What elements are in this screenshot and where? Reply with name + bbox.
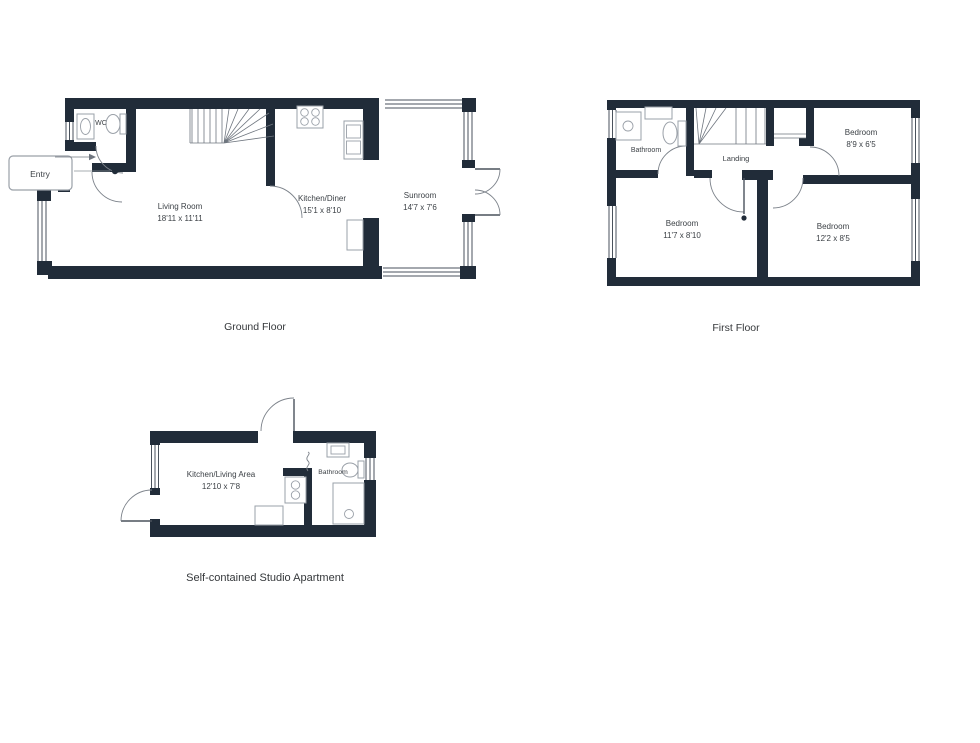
hob-icon [297,106,323,128]
wc-label: WC [95,120,107,127]
toilet-icon [663,122,677,144]
bathtub-icon [645,107,672,119]
studio-bathroom-label: Bathroom [318,469,348,476]
bedroom-label: Bedroom [845,128,878,137]
first-floor-bathroom-fixtures [616,107,686,146]
kitchen-fixtures [297,106,363,250]
staircase-first [694,108,766,144]
studio-doors [121,398,309,521]
kitchen-living-label: Kitchen/Living Area [187,470,256,479]
entry-annotation [9,154,96,190]
bedroom-label: Bedroom [817,222,850,231]
kitchen-living-dimensions: 12'10 x 7'8 [202,482,241,491]
kitchen-diner-label: Kitchen/Diner [298,194,346,203]
living-room-dimensions: 18'11 x 11'11 [157,214,203,223]
bedroom-dimensions: 11'7 x 8'10 [663,231,701,240]
first-floor-caption: First Floor [712,322,760,334]
ground-floor-plan: WC Entry Living Room 18'11 x 11'11 Kitch… [9,98,500,333]
living-room-label: Living Room [158,202,203,211]
shower-icon [333,483,364,524]
basin-icon [616,112,641,140]
counter-icon [255,506,283,525]
basin-icon [77,114,94,139]
studio-caption: Self-contained Studio Apartment [186,572,344,584]
bedroom-label: Bedroom [666,219,699,228]
toilet-cistern-icon [358,461,364,478]
toilet-cistern-icon [678,121,686,146]
floorplan-page: WC Entry Living Room 18'11 x 11'11 Kitch… [0,0,980,743]
entry-arrow-head-icon [89,154,96,160]
floorplan-canvas: WC Entry Living Room 18'11 x 11'11 Kitch… [0,0,980,743]
kitchen-diner-dimensions: 15'1 x 8'10 [303,206,342,215]
basin-icon [327,443,349,457]
entry-label: Entry [30,169,51,179]
staircase-ground [190,109,274,143]
first-floor-labels: Bathroom Landing Bedroom 8'9 x 6'5 Bedro… [631,128,878,334]
ground-floor-caption: Ground Floor [224,321,286,333]
sunroom-label: Sunroom [404,191,437,200]
counter-icon [347,220,363,250]
studio-plan: Kitchen/Living Area 12'10 x 7'8 Bathroom… [121,398,376,584]
landing-label: Landing [723,154,750,163]
sunroom-dimensions: 14'7 x 7'6 [403,203,437,212]
toilet-icon [106,115,120,134]
bedroom-dimensions: 8'9 x 6'5 [846,140,876,149]
bedroom-dimensions: 12'2 x 8'5 [816,234,850,243]
first-floor-plan: Bathroom Landing Bedroom 8'9 x 6'5 Bedro… [607,100,920,334]
bathroom-label: Bathroom [631,147,662,154]
toilet-cistern-icon [120,114,126,134]
